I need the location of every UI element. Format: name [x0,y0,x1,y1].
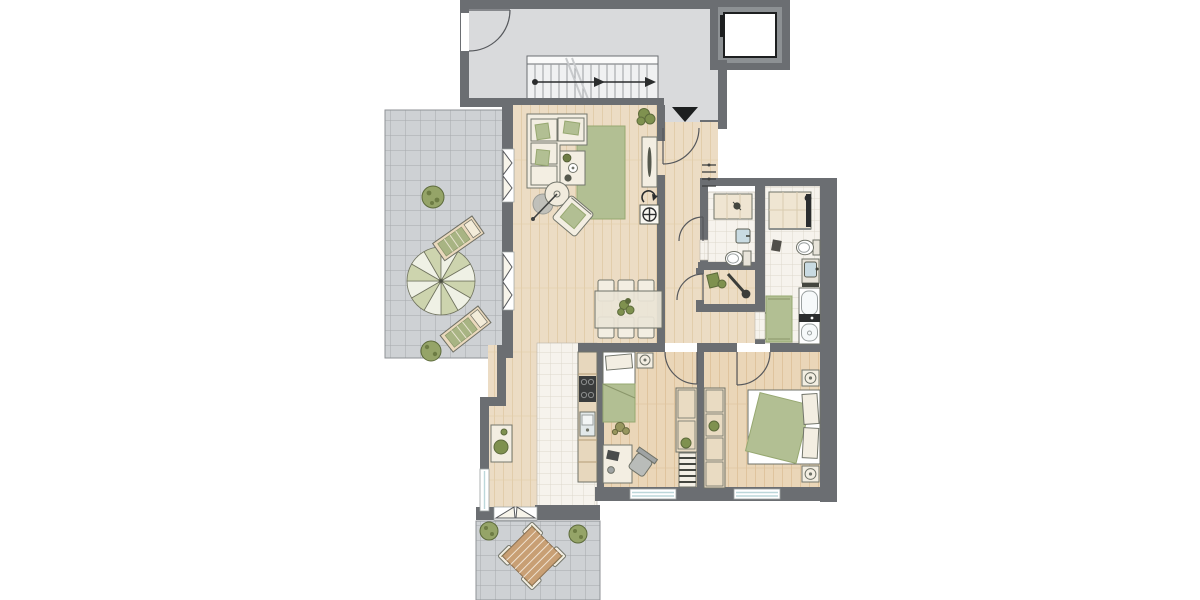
shelf-plant-icon [681,438,691,448]
ladder-shelf [679,453,696,487]
shrub-icon [480,522,498,540]
window [630,489,676,499]
toilet [726,251,752,266]
living-hall-opening [657,141,665,175]
desk [603,445,632,483]
shrub-icon [569,525,587,543]
toilet [797,240,821,255]
washbasin [736,229,750,243]
pillow [802,428,819,459]
hallway-floor [663,186,700,343]
elevator-cab [724,13,776,57]
terrace [385,110,505,361]
pillow [605,354,632,370]
floor-plan-drawing [0,0,1200,600]
pillow [802,393,819,424]
kitchen [578,352,597,482]
window [734,489,780,499]
kitchen-sink [580,412,595,436]
shower [714,194,752,219]
shrub-icon [421,341,441,361]
shelf-plant-icon [709,421,719,431]
sofa-pillow [563,121,580,135]
nightstand [637,353,653,368]
elevator [710,0,790,70]
lower-hall [491,425,512,462]
blanket [603,384,635,422]
sofa-pillow [535,149,549,165]
vacuum-icon [742,290,751,299]
towel-rail-icon [802,283,819,287]
sideboard [642,137,657,187]
bathroom-door-opening [755,312,765,339]
coffee-table [560,151,585,185]
electric-symbol-icon [640,205,659,224]
french-door [502,149,514,202]
window [480,469,489,511]
parasol-icon [407,247,475,315]
wall [718,60,727,126]
shower [769,192,811,229]
washbasin [802,259,819,287]
wc-door-opening [700,240,708,260]
hallway-floor [700,311,755,343]
floor-plan-canvas [0,0,1200,600]
stairwell-door-opening [461,13,469,51]
dining-area [595,280,662,338]
nightstand [802,466,819,482]
wall [460,0,718,9]
nightstand [802,370,819,386]
shrub-icon [422,186,444,208]
storage-item [718,280,726,288]
sofa-pillow [535,123,550,140]
french-door [502,252,514,310]
potted-plant-icon [501,429,507,435]
single-bed [603,352,635,422]
potted-plant-icon [494,440,508,454]
french-door [494,507,537,520]
console-table [491,425,512,462]
stool [771,239,782,251]
double-bed [746,390,820,464]
hallway-floor [663,122,718,186]
bathtub-faucet-icon [799,314,820,322]
stove-icon [579,376,596,402]
bath-mat [766,296,792,342]
wardrobe-shelf [676,388,697,487]
patio [476,521,600,600]
wardrobe-shelf [704,388,725,488]
staircase [527,56,658,104]
bathtub [799,288,820,344]
elevator-door-icon [720,15,725,37]
